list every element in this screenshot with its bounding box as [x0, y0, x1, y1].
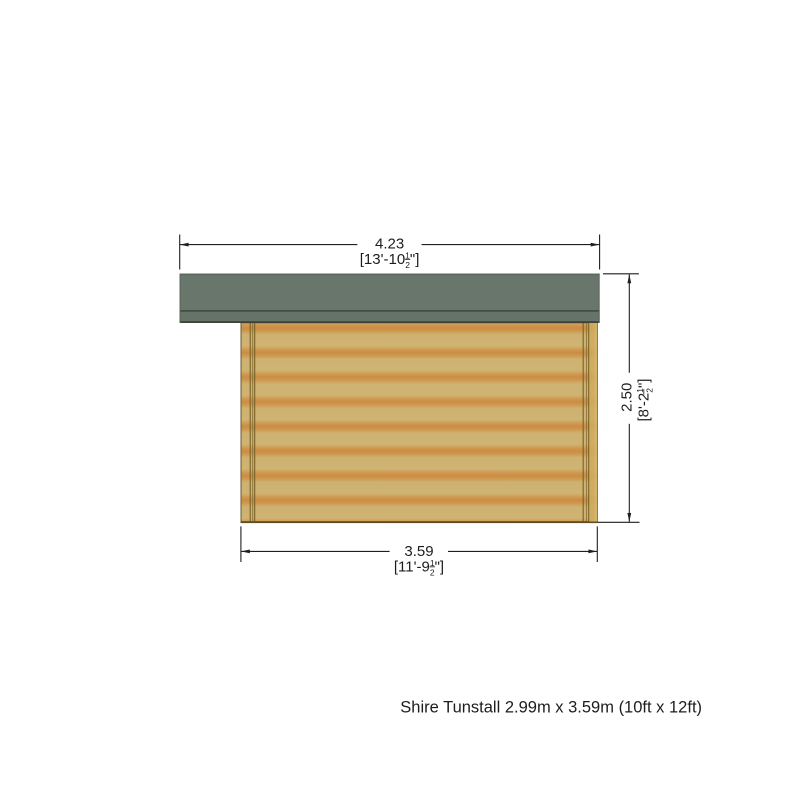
svg-text:Shire Tunstall 2.99m x 3.59m (: Shire Tunstall 2.99m x 3.59m (10ft x 12f… — [400, 699, 702, 717]
svg-text:[8'-212"]: [8'-212"] — [635, 379, 654, 422]
svg-text:[11'-912"]: [11'-912"] — [394, 558, 444, 577]
svg-text:[13'-1012"]: [13'-1012"] — [360, 250, 420, 269]
svg-text:2.50: 2.50 — [618, 383, 635, 412]
